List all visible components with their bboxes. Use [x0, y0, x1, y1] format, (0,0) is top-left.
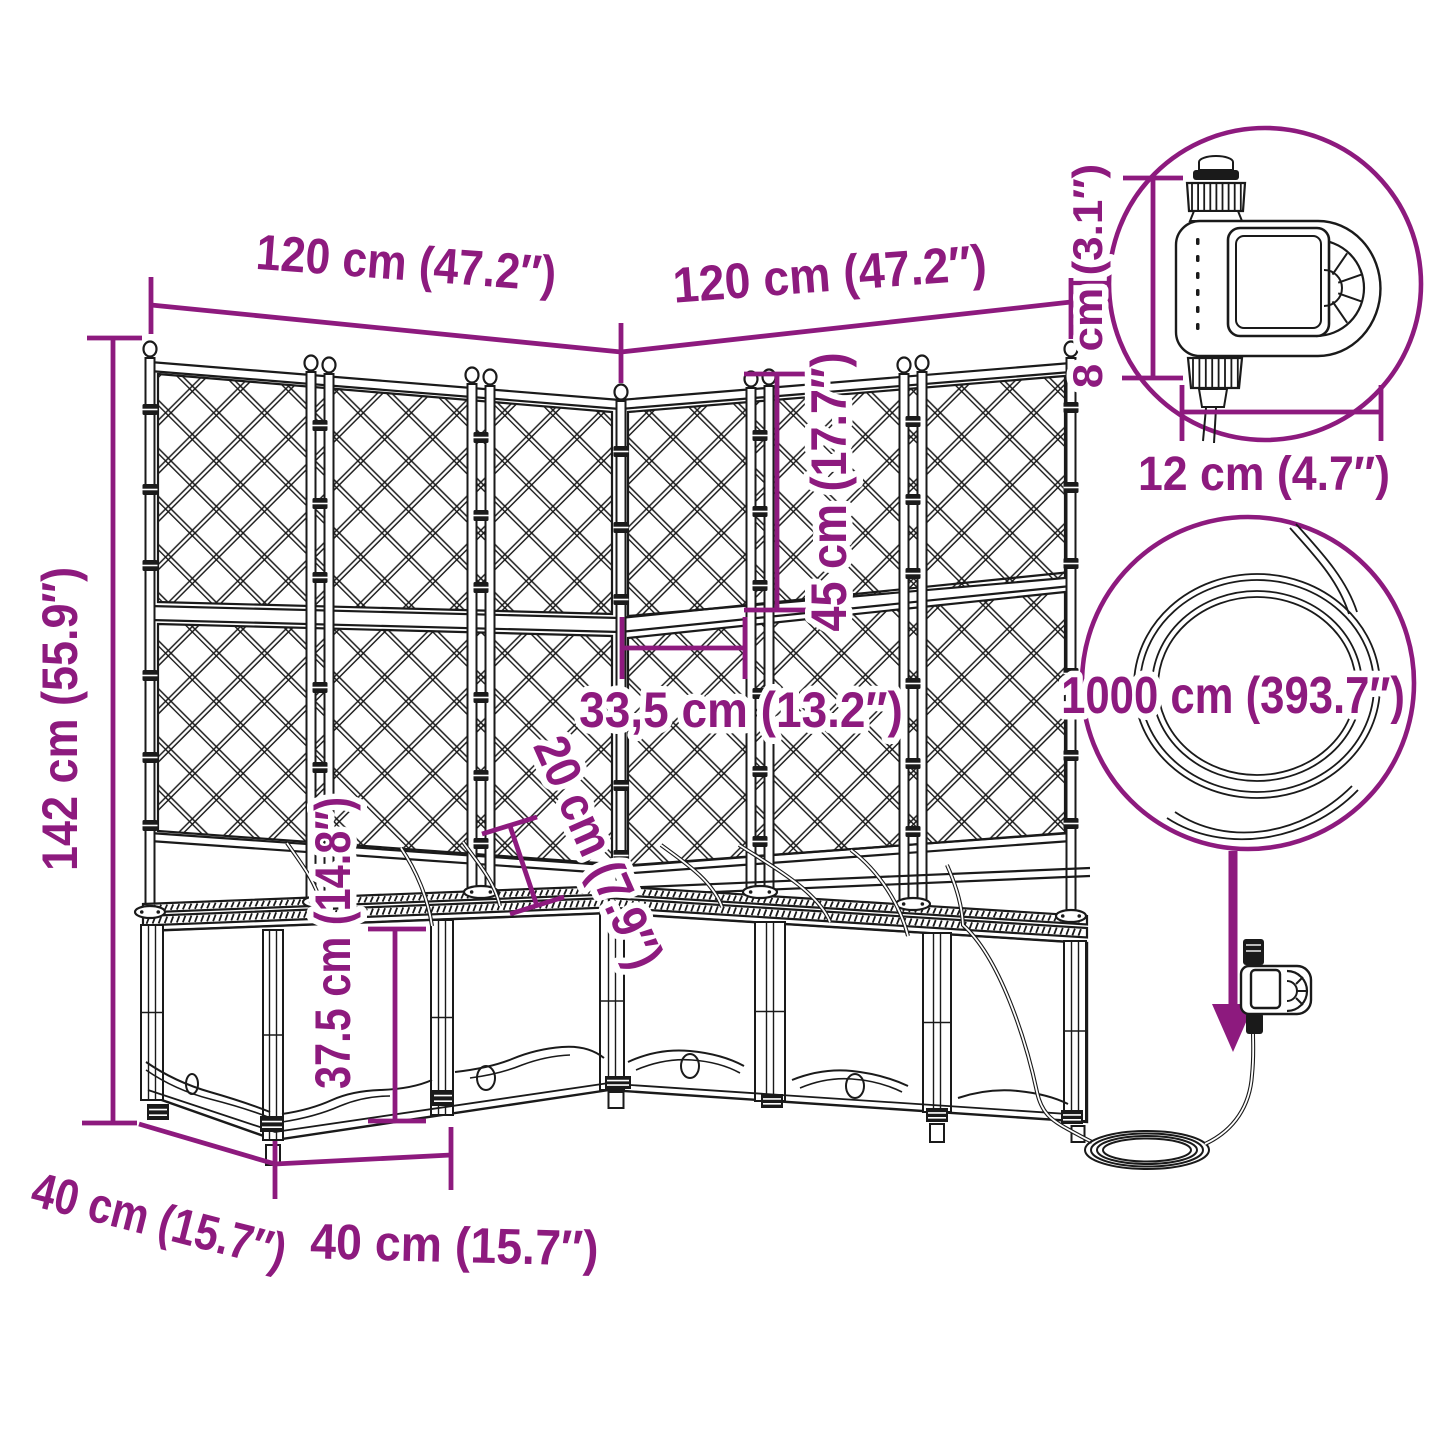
- svg-text:37.5 cm (14.8″): 37.5 cm (14.8″): [304, 797, 361, 1089]
- svg-text:12 cm (4.7″): 12 cm (4.7″): [1138, 447, 1390, 501]
- svg-text:142 cm (55.9″): 142 cm (55.9″): [33, 567, 89, 871]
- svg-text:8 cm (3.1″): 8 cm (3.1″): [1065, 164, 1112, 388]
- svg-text:1000 cm (393.7″): 1000 cm (393.7″): [1061, 668, 1405, 725]
- svg-text:45 cm (17.7″): 45 cm (17.7″): [802, 352, 858, 631]
- svg-text:33,5 cm (13.2″): 33,5 cm (13.2″): [579, 683, 903, 738]
- svg-text:40 cm (15.7″): 40 cm (15.7″): [310, 1214, 600, 1277]
